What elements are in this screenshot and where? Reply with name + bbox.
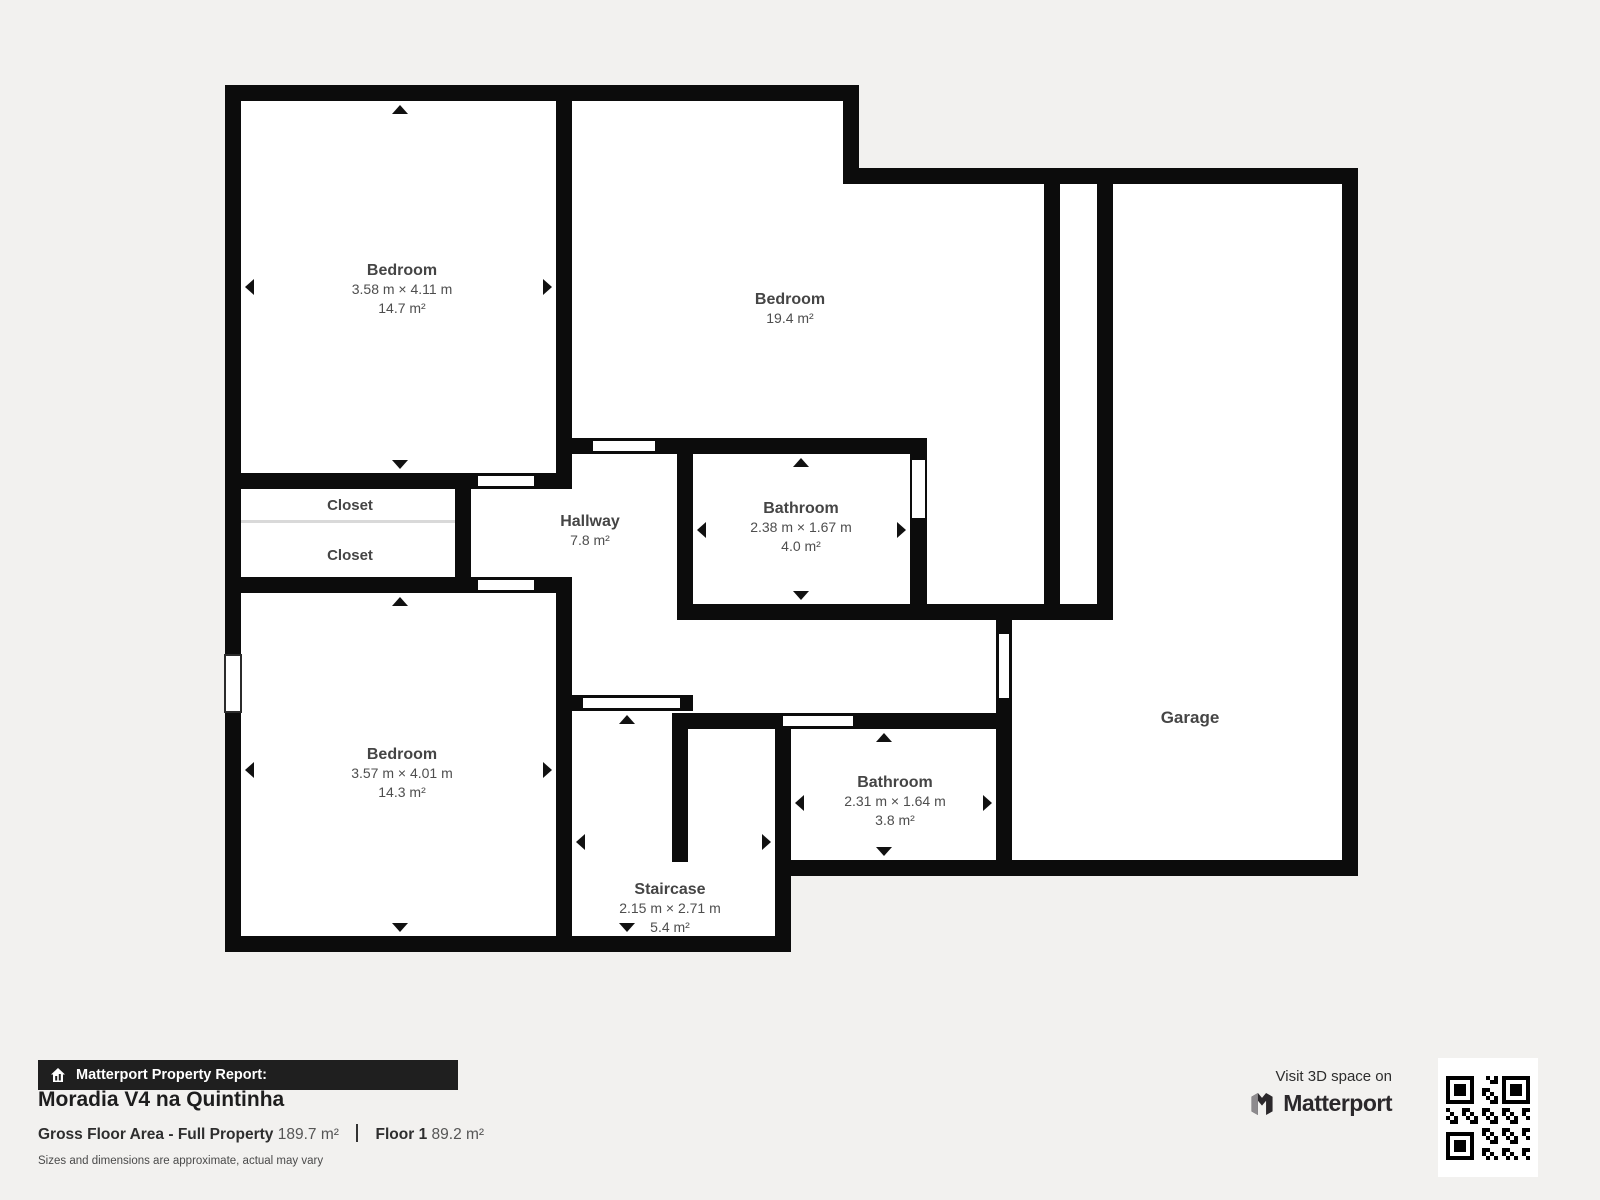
property-title: Moradia V4 na Quintinha [38,1088,284,1112]
floor-label: Floor 1 [376,1126,428,1143]
visit-3d-text: Visit 3D space on [1249,1068,1392,1085]
qr-code [1438,1058,1538,1177]
gross-floor-area-value: 189.7 m² [278,1126,339,1143]
house-icon [50,1067,66,1083]
disclaimer-text: Sizes and dimensions are approximate, ac… [38,1155,323,1167]
divider [356,1124,358,1142]
report-banner: Matterport Property Report: [38,1060,458,1090]
property-report-page: Bedroom 3.58 m × 4.11 m 14.7 m² Bedroom … [0,0,1600,1200]
matterport-logo-icon [1249,1091,1275,1117]
report-banner-label: Matterport Property Report: [76,1067,267,1083]
matterport-promo: Visit 3D space on Matterport [1249,1068,1392,1117]
floorplan-graphic [0,0,1600,1200]
gross-floor-area-label: Gross Floor Area - Full Property [38,1126,273,1143]
floor-value: 89.2 m² [432,1126,485,1143]
area-summary: Gross Floor Area - Full Property 189.7 m… [38,1124,484,1144]
matterport-wordmark: Matterport [1283,1090,1392,1117]
